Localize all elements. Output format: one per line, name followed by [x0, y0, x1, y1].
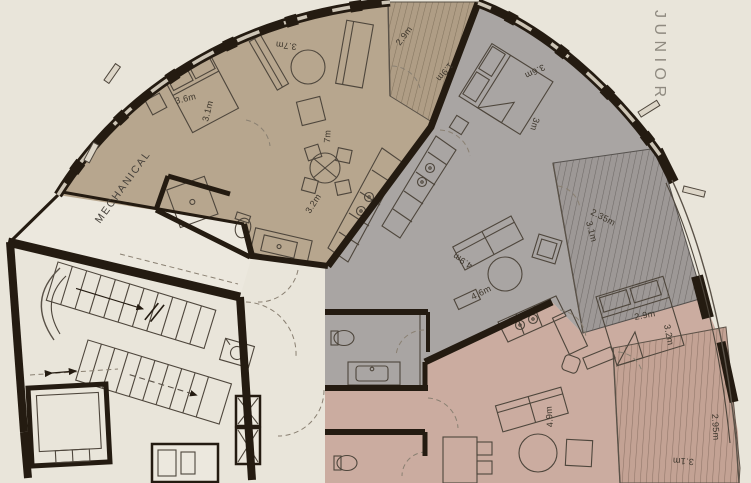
core-storage-room	[152, 444, 218, 482]
dim-pink-balcony-w: 3.1m	[672, 456, 694, 467]
junior-unit-label: JUNIOR	[651, 10, 668, 103]
dim-tan-living: 7m	[322, 129, 333, 143]
dim-pink-living: 4.9m	[544, 406, 555, 428]
floor-plan-drawing: 3.6m 3.1m 3.7m 7m 3.2m 2.9m 1.9m 3.6m 3m…	[0, 0, 751, 483]
floor-plan-canvas: 3.6m 3.1m 3.7m 7m 3.2m 2.9m 1.9m 3.6m 3m…	[0, 0, 751, 483]
dim-pink-balcony-d: 2.95m	[710, 414, 721, 441]
